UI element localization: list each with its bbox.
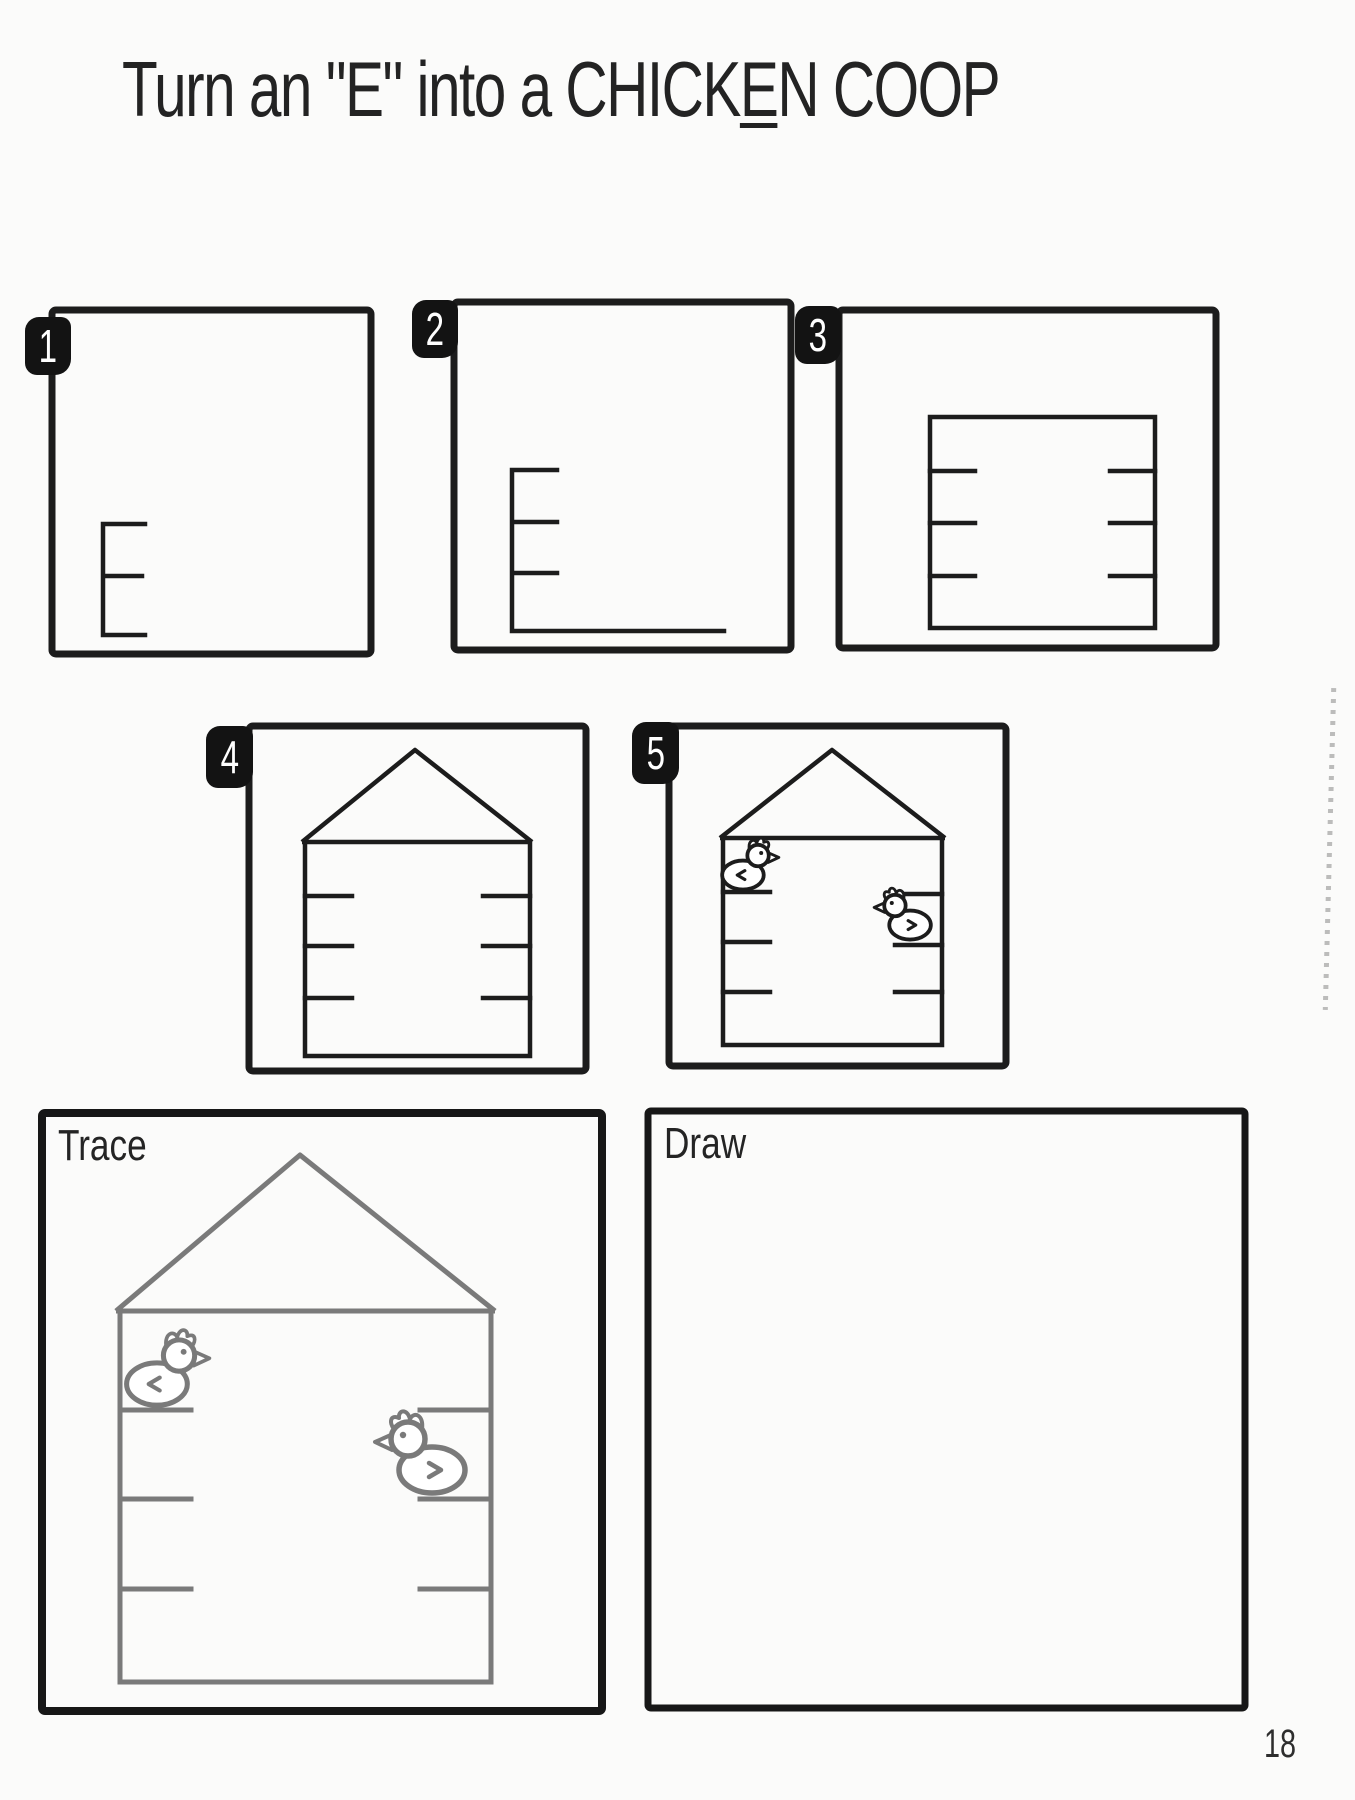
step-box-3: 3	[835, 306, 1220, 652]
step-box-1: 1	[48, 306, 375, 658]
step-number-tab-3: 3	[795, 306, 841, 364]
draw-area	[644, 1107, 1249, 1712]
title-underlined-letter: E	[740, 45, 778, 133]
step-number-4: 4	[220, 734, 238, 780]
step-number-1: 1	[39, 323, 57, 369]
coop-perches-trace	[120, 1410, 491, 1589]
chicken-eye	[181, 1349, 187, 1355]
chicken-head	[884, 895, 905, 916]
letter-e-with-floor-shape	[512, 470, 724, 631]
coop-roof-trace	[116, 1155, 495, 1311]
step-box-frame	[52, 310, 371, 654]
step-number-5: 5	[646, 730, 664, 776]
trace-box: Trace	[38, 1109, 606, 1715]
step-box-4: 4	[245, 722, 590, 1075]
trace-drawing	[38, 1109, 606, 1715]
chicken-icon	[127, 1330, 210, 1405]
worksheet-page: Turn an "E" into a CHICKEN COOP 1 2 3	[0, 0, 1355, 1800]
step-number-tab-1: 1	[25, 317, 71, 375]
step-box-2: 2	[450, 298, 795, 654]
coop-perches	[930, 471, 1155, 576]
page-number: 18	[1248, 1722, 1313, 1767]
trace-label: Trace	[58, 1121, 147, 1171]
step-3-drawing	[835, 306, 1220, 652]
chicken-icon	[375, 1411, 465, 1493]
chicken-icon	[722, 838, 779, 889]
draw-box: Draw	[644, 1107, 1249, 1712]
step-box-5: 5	[665, 722, 1010, 1070]
step-number-3: 3	[809, 312, 827, 358]
chicken-head	[163, 1340, 194, 1371]
margin-microtext	[1323, 688, 1336, 1010]
draw-box-frame	[648, 1111, 1245, 1708]
step-number-tab-5: 5	[632, 722, 679, 784]
draw-label: Draw	[664, 1119, 746, 1169]
step-box-frame	[839, 310, 1216, 648]
step-1-drawing	[48, 306, 375, 658]
step-number-2: 2	[426, 306, 444, 352]
chicken-eye	[400, 1432, 406, 1438]
coop-roof	[720, 750, 945, 838]
step-number-tab-2: 2	[412, 300, 458, 358]
title-part3: N COOP	[777, 45, 999, 133]
chicken-eye	[890, 901, 894, 905]
step-box-frame	[249, 726, 586, 1071]
letter-e-shape	[103, 524, 145, 635]
coop-roof	[302, 750, 532, 842]
chicken-head	[391, 1422, 425, 1456]
page-title: Turn an "E" into a CHICKEN COOP	[122, 44, 999, 135]
coop-body	[305, 842, 530, 1056]
coop-perches	[723, 892, 942, 992]
step-number-tab-4: 4	[206, 726, 253, 788]
step-4-drawing	[245, 722, 590, 1075]
step-box-frame	[454, 302, 791, 650]
chicken-eye	[759, 851, 763, 855]
chicken-head	[747, 845, 768, 866]
step-2-drawing	[450, 298, 795, 654]
step-box-frame	[669, 726, 1006, 1066]
coop-perches	[305, 896, 530, 998]
step-5-drawing	[665, 722, 1010, 1070]
title-part1: Turn an "E" into a CHICK	[122, 45, 740, 133]
